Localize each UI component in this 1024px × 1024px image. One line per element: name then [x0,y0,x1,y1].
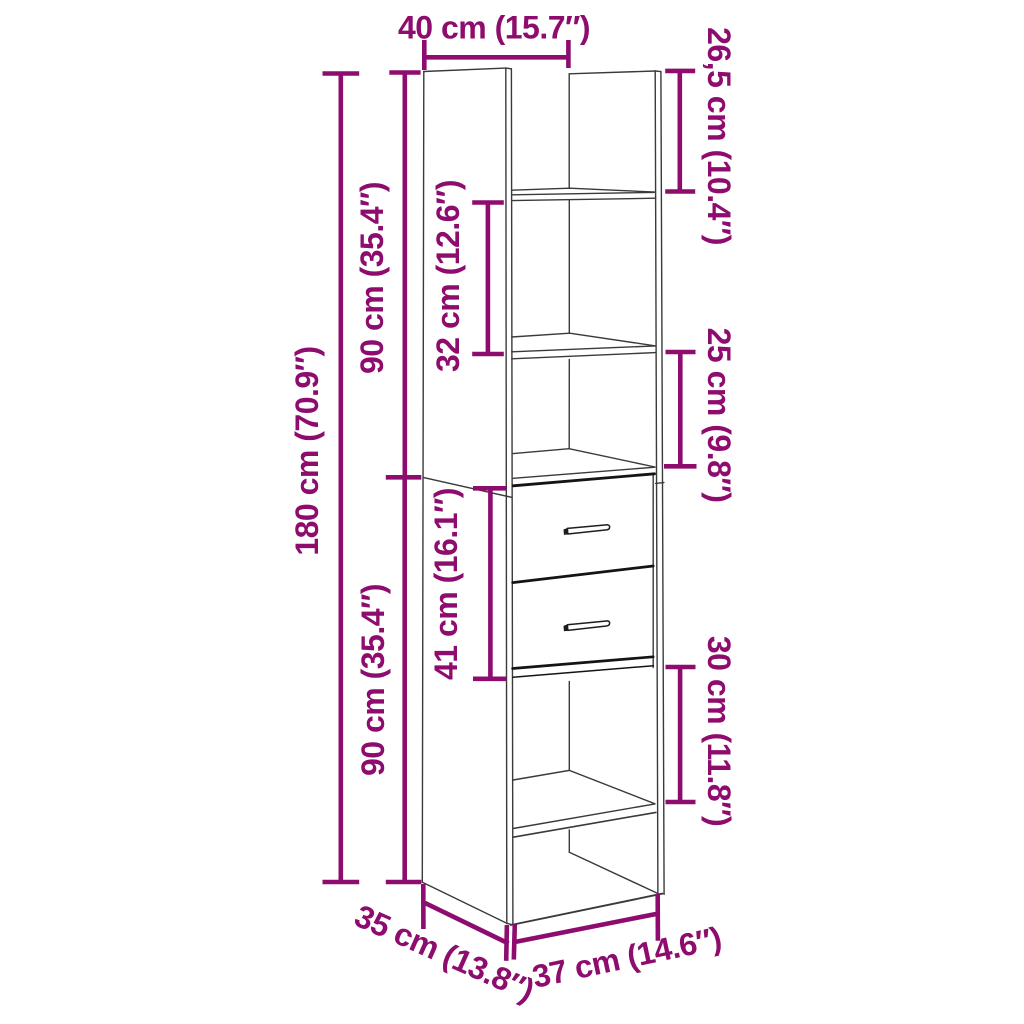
svg-text:25 cm (9.8″): 25 cm (9.8″) [701,328,737,503]
svg-text:180 cm (70.9″): 180 cm (70.9″) [289,346,325,555]
svg-text:90 cm (35.4″): 90 cm (35.4″) [354,182,390,374]
svg-text:90 cm (35.4″): 90 cm (35.4″) [355,584,391,776]
svg-text:30 cm (11.8″): 30 cm (11.8″) [701,636,737,826]
svg-text:26,5 cm (10.4″): 26,5 cm (10.4″) [701,27,737,245]
svg-text:40 cm (15.7″): 40 cm (15.7″) [398,10,590,46]
svg-text:32 cm (12.6″): 32 cm (12.6″) [430,180,466,372]
svg-text:41 cm (16.1″): 41 cm (16.1″) [428,488,464,680]
